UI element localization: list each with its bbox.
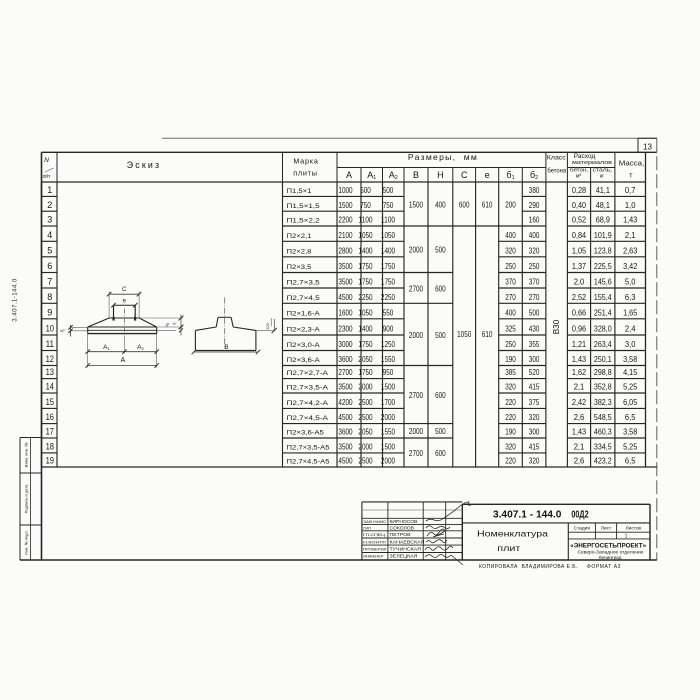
svg-text:1050: 1050: [457, 329, 471, 339]
svg-text:КАНАЕВСКАЯ: КАНАЕВСКАЯ: [390, 539, 425, 544]
svg-text:4500: 4500: [338, 292, 352, 302]
svg-text:400: 400: [435, 199, 446, 209]
svg-text:А: А: [346, 170, 352, 180]
svg-text:плиты: плиты: [293, 169, 318, 178]
svg-text:6,5: 6,5: [625, 412, 636, 422]
svg-text:500: 500: [529, 307, 540, 317]
svg-text:1500: 1500: [381, 442, 395, 452]
svg-text:е: е: [485, 170, 490, 180]
svg-text:Н.КОНТР.: Н.КОНТР.: [363, 539, 386, 544]
svg-text:8: 8: [47, 292, 52, 302]
svg-text:1100: 1100: [381, 215, 395, 225]
svg-text:3600: 3600: [338, 427, 352, 437]
svg-text:5: 5: [47, 245, 52, 255]
svg-text:460,3: 460,3: [594, 427, 612, 437]
svg-text:145,6: 145,6: [594, 277, 612, 287]
svg-text:12: 12: [46, 354, 54, 364]
svg-text:300: 300: [529, 354, 540, 364]
svg-text:П2,7×4,5-А5: П2,7×4,5-А5: [287, 459, 330, 466]
svg-text:500: 500: [360, 185, 371, 195]
svg-text:С: С: [461, 170, 468, 180]
svg-text:2050: 2050: [358, 354, 372, 364]
svg-text:290: 290: [529, 200, 540, 210]
svg-text:263,4: 263,4: [594, 339, 612, 349]
svg-text:500: 500: [435, 426, 446, 436]
svg-text:3600: 3600: [338, 354, 352, 364]
svg-text:ПЕТРОВ: ПЕТРОВ: [390, 532, 411, 537]
svg-text:68,9: 68,9: [596, 215, 610, 225]
svg-text:2800: 2800: [338, 245, 352, 255]
svg-text:320: 320: [505, 245, 516, 255]
svg-text:250: 250: [505, 261, 516, 271]
svg-text:2000: 2000: [409, 245, 423, 255]
svg-text:2,0: 2,0: [574, 277, 585, 287]
svg-text:П2×2,1: П2×2,1: [287, 233, 312, 240]
svg-text:3: 3: [47, 215, 52, 225]
svg-text:423,2: 423,2: [594, 456, 612, 466]
svg-text:2250: 2250: [381, 292, 395, 302]
svg-text:1,43: 1,43: [572, 354, 586, 364]
svg-text:ЗАВ.НИИС: ЗАВ.НИИС: [363, 519, 386, 524]
svg-text:1400: 1400: [381, 245, 395, 255]
svg-text:2500: 2500: [358, 397, 372, 407]
svg-text:1,37: 1,37: [572, 261, 586, 271]
svg-text:2500: 2500: [358, 412, 372, 422]
svg-text:1500: 1500: [409, 199, 423, 209]
svg-text:2000: 2000: [381, 412, 395, 422]
svg-text:0,28: 0,28: [572, 185, 586, 195]
svg-text:123,8: 123,8: [594, 245, 612, 255]
svg-text:1000: 1000: [338, 185, 352, 195]
svg-text:1050: 1050: [358, 307, 372, 317]
svg-text:4500: 4500: [338, 456, 352, 466]
svg-text:325: 325: [505, 324, 516, 334]
svg-text:П2×3,6-А: П2×3,6-А: [287, 357, 321, 364]
svg-text:6,5: 6,5: [625, 456, 636, 466]
svg-text:1,43: 1,43: [623, 215, 637, 225]
svg-text:П2,7×2,7-А: П2,7×2,7-А: [287, 370, 329, 377]
svg-text:200: 200: [505, 199, 516, 209]
svg-text:ФОРМАТ А3: ФОРМАТ А3: [587, 564, 621, 570]
svg-text:ЗЕЛЕЦКАЯ: ЗЕЛЕЦКАЯ: [390, 554, 418, 559]
svg-text:П2×2,8: П2×2,8: [287, 248, 312, 255]
svg-text:Листов: Листов: [626, 525, 642, 531]
svg-text:ТУЧИНСКАЯ: ТУЧИНСКАЯ: [390, 546, 422, 551]
svg-text:600: 600: [459, 199, 470, 209]
svg-text:ПРОВЕРИЛ: ПРОВЕРИЛ: [363, 546, 387, 551]
svg-text:Лист: Лист: [601, 525, 612, 531]
svg-text:Стадия: Стадия: [574, 525, 591, 531]
svg-text:плит: плит: [497, 544, 520, 553]
svg-text:1050: 1050: [358, 230, 372, 240]
svg-text:2700: 2700: [409, 448, 423, 458]
svg-text:13: 13: [46, 367, 54, 377]
svg-text:380: 380: [529, 185, 540, 195]
svg-text:550: 550: [383, 307, 394, 317]
svg-text:П2,7×3,5-А: П2,7×3,5-А: [287, 385, 329, 392]
svg-text:П2,7×4,5-А: П2,7×4,5-А: [287, 415, 329, 422]
svg-text:3500: 3500: [338, 277, 352, 287]
svg-text:м³: м³: [576, 174, 582, 180]
svg-text:ГЛ.СПЕЦ.: ГЛ.СПЕЦ.: [363, 532, 386, 537]
svg-text:100: 100: [265, 322, 270, 329]
svg-text:3,58: 3,58: [623, 427, 637, 437]
svg-text:328,0: 328,0: [594, 324, 612, 334]
svg-text:1250: 1250: [381, 339, 395, 349]
svg-text:400: 400: [505, 307, 516, 317]
svg-text:Инв. № подл.: Инв. № подл.: [24, 530, 29, 555]
svg-text:3500: 3500: [338, 442, 352, 452]
svg-text:п/п: п/п: [43, 174, 50, 180]
svg-text:2,1: 2,1: [625, 230, 636, 240]
svg-text:2200: 2200: [338, 215, 352, 225]
svg-text:1,0: 1,0: [625, 200, 636, 210]
svg-text:материалов: материалов: [572, 160, 612, 166]
svg-text:2000: 2000: [409, 426, 423, 436]
svg-text:3.407.1-144.0: 3.407.1-144.0: [12, 278, 19, 322]
svg-text:0,52: 0,52: [572, 215, 586, 225]
svg-text:В30: В30: [552, 319, 561, 334]
svg-text:334,5: 334,5: [594, 442, 612, 452]
svg-text:3,58: 3,58: [623, 354, 637, 364]
svg-text:41,1: 41,1: [596, 185, 610, 195]
svg-text:400: 400: [505, 230, 516, 240]
svg-text:610: 610: [482, 199, 493, 209]
svg-text:1400: 1400: [358, 245, 372, 255]
svg-text:1700: 1700: [381, 397, 395, 407]
svg-text:19: 19: [46, 456, 54, 466]
svg-text:00Д2: 00Д2: [571, 509, 588, 521]
svg-text:48,1: 48,1: [596, 200, 610, 210]
svg-text:270: 270: [505, 292, 516, 302]
svg-text:352,8: 352,8: [594, 382, 612, 392]
svg-text:6,05: 6,05: [623, 397, 637, 407]
svg-text:2000: 2000: [409, 330, 423, 340]
svg-text:500: 500: [435, 245, 446, 255]
svg-text:101,9: 101,9: [594, 230, 612, 240]
svg-text:СОКОЛОВ: СОКОЛОВ: [390, 525, 415, 530]
svg-text:Марка: Марка: [293, 157, 318, 166]
svg-text:Н: Н: [437, 170, 444, 180]
svg-text:3.407.1 - 144.0: 3.407.1 - 144.0: [493, 509, 562, 521]
svg-text:1550: 1550: [381, 354, 395, 364]
svg-text:18: 18: [46, 442, 54, 452]
svg-text:П2×1,6-А: П2×1,6-А: [287, 310, 321, 317]
svg-text:П2,7×3,5-А5: П2,7×3,5-А5: [287, 445, 330, 452]
svg-text:11: 11: [46, 339, 54, 349]
svg-text:2300: 2300: [338, 324, 352, 334]
svg-text:250,1: 250,1: [594, 354, 612, 364]
svg-text:1750: 1750: [358, 367, 372, 377]
svg-text:13: 13: [643, 143, 652, 152]
svg-text:3500: 3500: [338, 261, 352, 271]
svg-text:1,21: 1,21: [572, 339, 586, 349]
svg-text:375: 375: [529, 397, 540, 407]
svg-text:1400: 1400: [358, 324, 372, 334]
svg-text:520: 520: [529, 367, 540, 377]
svg-text:155,4: 155,4: [594, 292, 612, 302]
svg-text:1: 1: [625, 533, 628, 539]
svg-text:3000: 3000: [338, 339, 352, 349]
svg-text:2700: 2700: [409, 283, 423, 293]
svg-text:370: 370: [505, 277, 516, 287]
svg-text:220: 220: [505, 412, 516, 422]
svg-text:750: 750: [383, 200, 394, 210]
svg-text:1550: 1550: [381, 427, 395, 437]
svg-text:3500: 3500: [338, 382, 352, 392]
svg-text:251,4: 251,4: [594, 307, 612, 317]
svg-text:1,43: 1,43: [572, 427, 586, 437]
svg-text:ГИП: ГИП: [363, 525, 371, 530]
svg-text:300: 300: [529, 427, 540, 437]
svg-text:1050: 1050: [381, 230, 395, 240]
svg-text:1,65: 1,65: [623, 307, 637, 317]
svg-text:Эскиз: Эскиз: [127, 160, 162, 170]
svg-text:225,5: 225,5: [594, 261, 612, 271]
svg-text:1500: 1500: [338, 200, 352, 210]
svg-text:0,84: 0,84: [572, 230, 586, 240]
svg-text:2000: 2000: [358, 382, 372, 392]
svg-text:600: 600: [435, 283, 446, 293]
svg-text:220: 220: [505, 456, 516, 466]
svg-text:КИРНОСОВ: КИРНОСОВ: [390, 519, 418, 524]
svg-text:Расход: Расход: [574, 154, 596, 160]
svg-text:КОПИРОВАЛА ВЛАДИМИРОВА Е.Б.: КОПИРОВАЛА ВЛАДИМИРОВА Е.Б.: [479, 564, 578, 570]
svg-text:А2: А2: [137, 344, 144, 351]
svg-text:190: 190: [505, 427, 516, 437]
svg-text:П2×3,5: П2×3,5: [287, 264, 312, 271]
svg-text:1750: 1750: [381, 261, 395, 271]
svg-text:2500: 2500: [358, 456, 372, 466]
svg-text:1: 1: [47, 185, 52, 195]
svg-text:2,42: 2,42: [572, 397, 586, 407]
svg-text:П1,5×1,5: П1,5×1,5: [287, 203, 320, 210]
svg-text:1600: 1600: [338, 307, 352, 317]
svg-text:15: 15: [46, 397, 54, 407]
svg-text:17: 17: [46, 427, 54, 437]
svg-text:3,42: 3,42: [623, 261, 637, 271]
svg-text:1750: 1750: [358, 277, 372, 287]
svg-text:Номенклатура: Номенклатура: [477, 530, 549, 539]
svg-text:П1,5×1: П1,5×1: [287, 188, 312, 195]
svg-text:2,4: 2,4: [625, 324, 636, 334]
svg-text:610: 610: [482, 329, 493, 339]
svg-text:2,52: 2,52: [572, 292, 586, 302]
svg-text:бетона: бетона: [547, 167, 566, 175]
svg-text:250: 250: [529, 261, 540, 271]
svg-text:500: 500: [383, 185, 394, 195]
svg-text:В: В: [413, 170, 419, 180]
svg-text:2,1: 2,1: [574, 382, 585, 392]
svg-text:4200: 4200: [338, 397, 352, 407]
svg-text:370: 370: [529, 277, 540, 287]
svg-text:Масса,: Масса,: [619, 158, 645, 167]
svg-text:2,6: 2,6: [574, 456, 585, 466]
svg-text:548,5: 548,5: [594, 412, 612, 422]
svg-text:П2×3,6-А5: П2×3,6-А5: [287, 430, 325, 437]
svg-text:1,05: 1,05: [572, 245, 586, 255]
svg-text:2050: 2050: [358, 427, 372, 437]
svg-text:600: 600: [435, 448, 446, 458]
svg-text:500: 500: [435, 330, 446, 340]
svg-text:«ЭНЕРГОСЕТЬПРОЕКТ»: «ЭНЕРГОСЕТЬПРОЕКТ»: [570, 543, 647, 549]
svg-text:П2,7×4,5: П2,7×4,5: [287, 295, 320, 302]
svg-text:П2,7×4,2-А: П2,7×4,2-А: [287, 400, 329, 407]
svg-text:6,3: 6,3: [625, 292, 636, 302]
svg-text:14: 14: [46, 382, 54, 392]
svg-text:ИНЖЕНЕР: ИНЖЕНЕР: [363, 554, 384, 559]
svg-text:2700: 2700: [338, 367, 352, 377]
svg-text:2000: 2000: [358, 442, 372, 452]
svg-text:0,96: 0,96: [572, 324, 586, 334]
svg-text:П2×2,3-А: П2×2,3-А: [287, 327, 321, 334]
svg-text:Размеры, мм: Размеры, мм: [408, 152, 478, 162]
svg-text:750: 750: [360, 200, 371, 210]
svg-text:2: 2: [47, 200, 52, 210]
svg-text:1750: 1750: [358, 339, 372, 349]
svg-text:П1,5×2,2: П1,5×2,2: [287, 218, 320, 225]
svg-text:9: 9: [47, 307, 52, 317]
svg-text:1100: 1100: [358, 215, 372, 225]
svg-text:1500: 1500: [381, 382, 395, 392]
svg-text:5,0: 5,0: [625, 277, 636, 287]
svg-text:400: 400: [529, 230, 540, 240]
svg-text:5,25: 5,25: [623, 382, 637, 392]
svg-text:250: 250: [505, 339, 516, 349]
svg-text:2,63: 2,63: [623, 245, 637, 255]
svg-text:Подпись и дата: Подпись и дата: [24, 484, 29, 514]
svg-text:А: А: [120, 357, 125, 364]
svg-text:415: 415: [529, 382, 540, 392]
svg-text:П2×3,0-А: П2×3,0-А: [287, 342, 321, 349]
svg-text:950: 950: [383, 367, 394, 377]
svg-text:2100: 2100: [338, 230, 352, 240]
svg-text:П2,7×3,5: П2,7×3,5: [287, 280, 320, 287]
svg-text:В: В: [224, 344, 228, 351]
svg-text:900: 900: [383, 324, 394, 334]
svg-text:2,6: 2,6: [574, 412, 585, 422]
svg-text:355: 355: [529, 339, 540, 349]
svg-text:382,3: 382,3: [594, 397, 612, 407]
svg-text:А1: А1: [103, 344, 110, 351]
svg-text:0,66: 0,66: [572, 307, 586, 317]
svg-text:N: N: [44, 157, 49, 164]
svg-text:Ленинград: Ленинград: [599, 555, 622, 560]
svg-text:С: С: [122, 287, 127, 293]
svg-text:220: 220: [505, 397, 516, 407]
svg-text:Взам. инв. №: Взам. инв. №: [24, 443, 29, 468]
svg-text:430: 430: [529, 324, 540, 334]
svg-text:кг: кг: [600, 174, 604, 180]
svg-text:5,25: 5,25: [623, 442, 637, 452]
svg-text:2000: 2000: [381, 456, 395, 466]
svg-text:190: 190: [505, 354, 516, 364]
svg-text:7: 7: [47, 277, 52, 287]
svg-text:270: 270: [529, 292, 540, 302]
svg-text:0,7: 0,7: [625, 185, 636, 195]
svg-text:160: 160: [529, 215, 540, 225]
svg-text:298,8: 298,8: [594, 367, 612, 377]
svg-text:320: 320: [529, 412, 540, 422]
svg-text:Класс: Класс: [547, 155, 567, 162]
svg-text:1750: 1750: [358, 261, 372, 271]
svg-text:4,15: 4,15: [623, 367, 637, 377]
svg-text:2250: 2250: [358, 292, 372, 302]
svg-text:600: 600: [435, 390, 446, 400]
svg-text:320: 320: [529, 245, 540, 255]
svg-text:6: 6: [47, 261, 52, 271]
svg-text:415: 415: [529, 442, 540, 452]
svg-text:3,0: 3,0: [625, 339, 636, 349]
svg-text:0,40: 0,40: [572, 200, 586, 210]
svg-text:2700: 2700: [409, 390, 423, 400]
svg-text:385: 385: [505, 367, 516, 377]
svg-text:320: 320: [529, 456, 540, 466]
svg-text:10: 10: [46, 324, 54, 334]
svg-text:4500: 4500: [338, 412, 352, 422]
svg-text:2,1: 2,1: [574, 442, 585, 452]
svg-text:320: 320: [505, 382, 516, 392]
svg-text:1750: 1750: [381, 277, 395, 287]
svg-text:16: 16: [46, 412, 54, 422]
svg-text:4: 4: [47, 230, 52, 240]
svg-text:320: 320: [505, 442, 516, 452]
svg-text:1,62: 1,62: [572, 367, 586, 377]
